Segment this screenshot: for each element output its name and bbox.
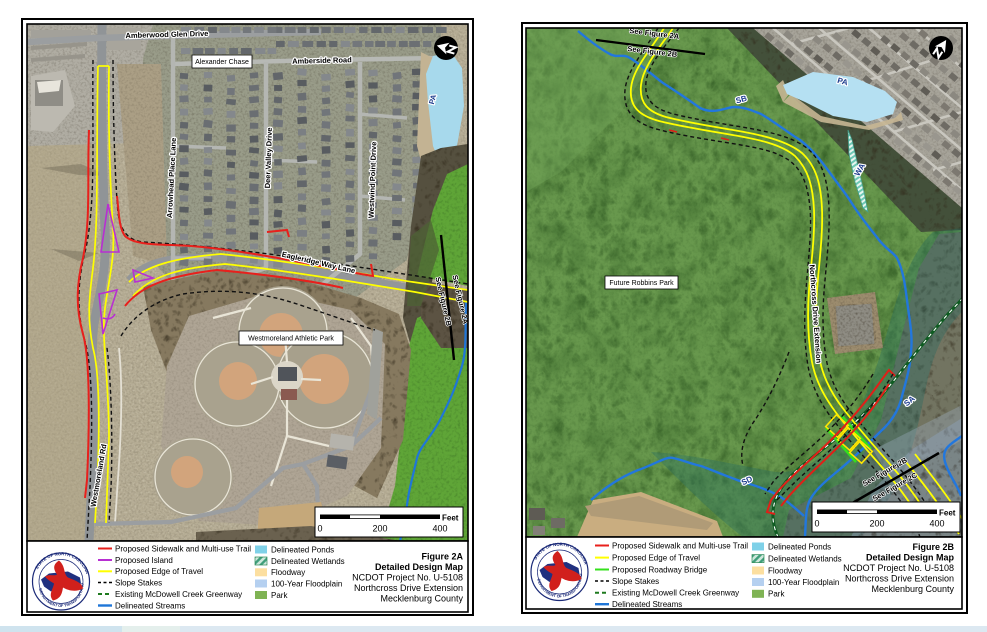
svg-text:Floodway: Floodway [768, 566, 802, 575]
svg-text:Floodway: Floodway [271, 568, 305, 577]
svg-text:Proposed Island: Proposed Island [115, 556, 173, 565]
svg-text:Park: Park [768, 590, 785, 599]
svg-text:Proposed Edge of Travel: Proposed Edge of Travel [612, 553, 700, 562]
svg-text:Alexander Chase: Alexander Chase [195, 59, 249, 66]
svg-text:Feet: Feet [442, 514, 459, 523]
svg-text:0: 0 [815, 519, 820, 529]
svg-text:Detailed Design Map: Detailed Design Map [866, 553, 955, 563]
svg-text:400: 400 [432, 524, 447, 534]
svg-text:Figure 2A: Figure 2A [421, 552, 463, 562]
svg-text:Westmoreland Athletic Park: Westmoreland Athletic Park [248, 336, 334, 343]
svg-text:Delineated Streams: Delineated Streams [612, 600, 682, 609]
svg-text:200: 200 [372, 524, 387, 534]
svg-text:Existing McDowell Creek Greenw: Existing McDowell Creek Greenway [612, 589, 739, 598]
svg-text:Feet: Feet [939, 509, 956, 518]
svg-text:Slope Stakes: Slope Stakes [115, 578, 162, 587]
svg-text:Detailed Design Map: Detailed Design Map [375, 562, 464, 572]
svg-text:Proposed Roadway Bridge: Proposed Roadway Bridge [612, 565, 708, 574]
svg-text:Delineated Wetlands: Delineated Wetlands [768, 554, 842, 563]
svg-text:Mecklenburg County: Mecklenburg County [871, 584, 954, 594]
svg-text:Delineated Ponds: Delineated Ponds [271, 545, 334, 554]
svg-text:Future Robbins Park: Future Robbins Park [609, 280, 674, 287]
svg-text:100-Year Floodplain: 100-Year Floodplain [768, 578, 839, 587]
svg-text:Mecklenburg County: Mecklenburg County [380, 594, 463, 604]
svg-text:Proposed Sidewalk and Multi-us: Proposed Sidewalk and Multi-use Trail [115, 544, 251, 553]
svg-text:Proposed Edge of Travel: Proposed Edge of Travel [115, 567, 203, 576]
svg-text:400: 400 [929, 519, 944, 529]
svg-text:Slope Stakes: Slope Stakes [612, 577, 659, 586]
svg-text:Amberside Road: Amberside Road [292, 55, 352, 66]
svg-text:Delineated Ponds: Delineated Ponds [768, 542, 831, 551]
svg-text:NCDOT Project No. U-5108: NCDOT Project No. U-5108 [352, 573, 463, 583]
svg-text:0: 0 [318, 524, 323, 534]
svg-text:Northcross Drive Extension: Northcross Drive Extension [354, 583, 463, 593]
svg-text:Park: Park [271, 591, 288, 600]
svg-text:Northcross Drive Extension: Northcross Drive Extension [845, 574, 954, 584]
svg-text:Figure 2B: Figure 2B [912, 542, 954, 552]
svg-text:NCDOT Project No. U-5108: NCDOT Project No. U-5108 [843, 563, 954, 573]
svg-text:Delineated Wetlands: Delineated Wetlands [271, 557, 345, 566]
svg-text:Proposed Sidewalk and Multi-us: Proposed Sidewalk and Multi-use Trail [612, 541, 748, 550]
svg-text:200: 200 [869, 519, 884, 529]
svg-text:Existing McDowell Creek Greenw: Existing McDowell Creek Greenway [115, 590, 242, 599]
svg-text:100-Year Floodplain: 100-Year Floodplain [271, 579, 342, 588]
svg-text:Delineated Streams: Delineated Streams [115, 601, 185, 610]
